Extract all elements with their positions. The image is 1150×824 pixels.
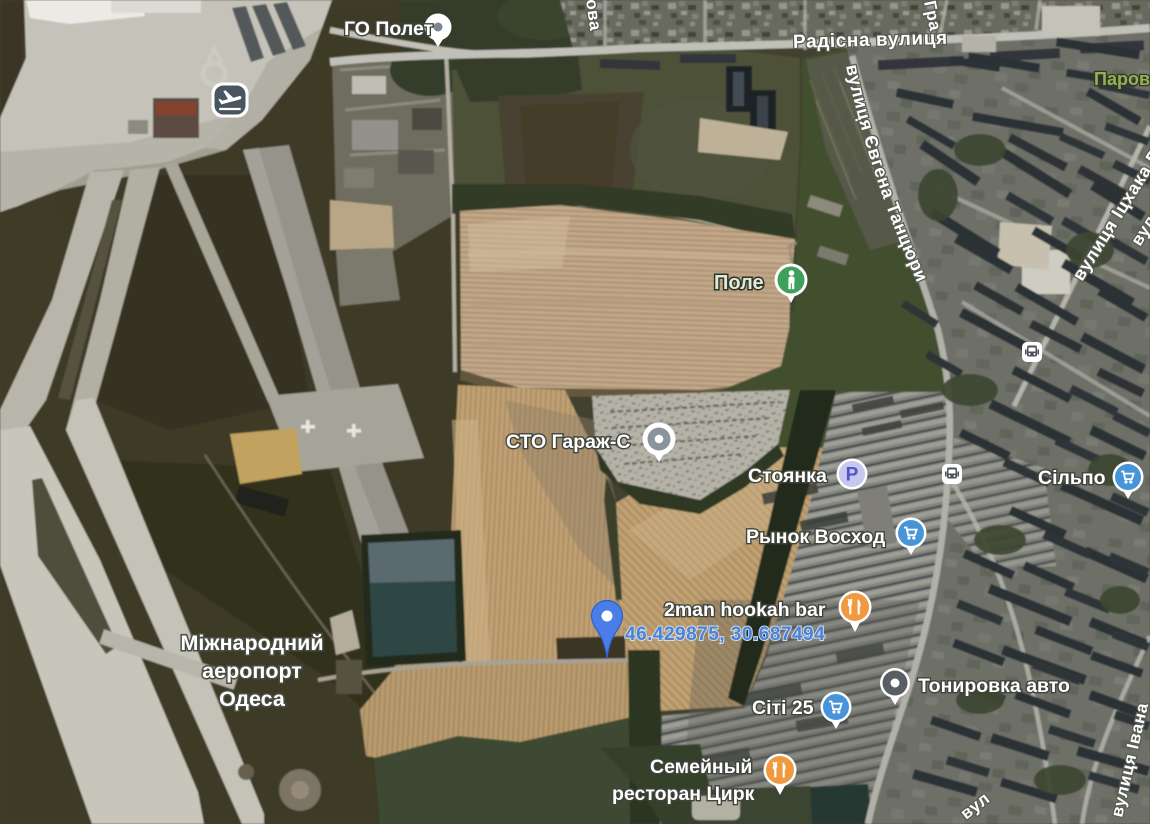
svg-text:Паров: Паров xyxy=(1094,69,1150,89)
svg-text:Поле: Поле xyxy=(714,272,764,294)
svg-text:Сіті 25: Сіті 25 xyxy=(752,697,814,719)
svg-text:ресторан Цирк: ресторан Цирк xyxy=(612,783,755,805)
svg-text:2man hookah bar: 2man hookah bar xyxy=(664,599,826,621)
svg-text:Стоянка: Стоянка xyxy=(748,465,827,487)
svg-text:46.429875, 30.687494: 46.429875, 30.687494 xyxy=(625,624,825,645)
svg-text:СТО Гараж-С: СТО Гараж-С xyxy=(506,431,630,453)
svg-text:P: P xyxy=(846,465,859,486)
svg-text:аеропорт: аеропорт xyxy=(202,659,302,683)
svg-text:Міжнародний: Міжнародний xyxy=(180,631,323,655)
svg-text:Семейный: Семейный xyxy=(650,756,752,778)
svg-text:Рынок Восход: Рынок Восход xyxy=(746,526,886,548)
svg-text:Одеса: Одеса xyxy=(219,687,286,711)
svg-text:Радісна вулиця: Радісна вулиця xyxy=(793,28,948,53)
svg-text:Сільпо: Сільпо xyxy=(1038,467,1106,489)
svg-text:Тонировка авто: Тонировка авто xyxy=(918,675,1070,697)
svg-text:ГО Полет: ГО Полет xyxy=(344,18,433,40)
